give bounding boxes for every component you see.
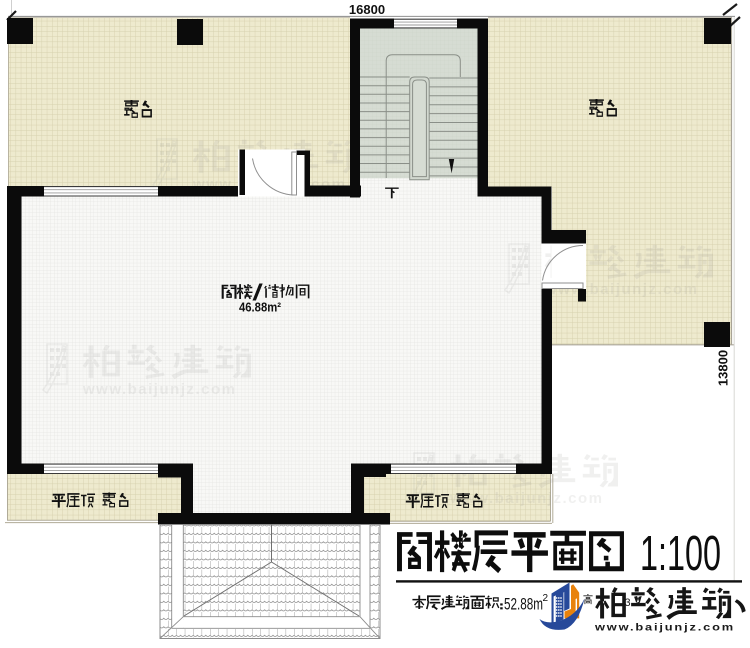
svg-text:www.baijunjz.com: www.baijunjz.com	[449, 490, 603, 507]
svg-text:46.88m²: 46.88m²	[239, 300, 282, 315]
svg-text:1:100: 1:100	[640, 527, 721, 581]
svg-text:16800: 16800	[349, 2, 385, 17]
svg-text:13800: 13800	[716, 350, 731, 386]
svg-text:www.baijunjz.com: www.baijunjz.com	[594, 622, 735, 634]
svg-text:www.baijunjz.com: www.baijunjz.com	[82, 381, 236, 398]
svg-text:52.88m: 52.88m	[504, 596, 543, 614]
svg-text:2: 2	[543, 593, 549, 604]
